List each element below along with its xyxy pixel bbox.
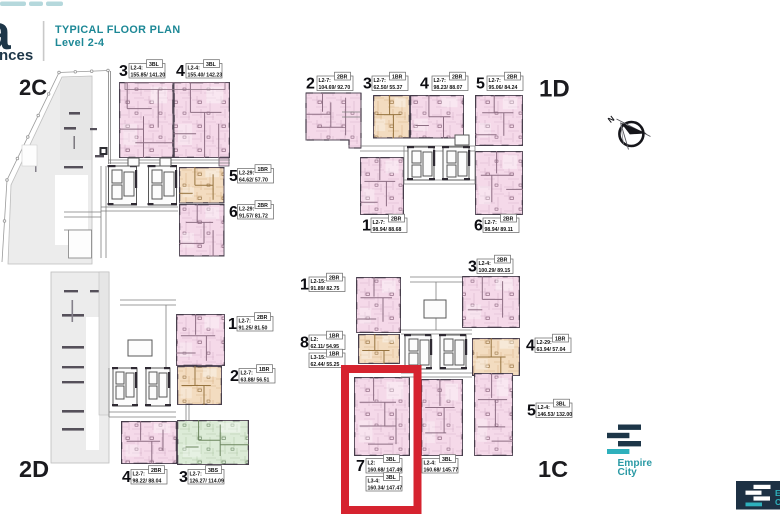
svg-text:100.29/ 89.15: 100.29/ 89.15 — [479, 268, 511, 274]
svg-text:1D: 1D — [539, 76, 570, 103]
svg-text:98.94/ 88.68: 98.94/ 88.68 — [373, 227, 402, 233]
svg-text:6: 6 — [229, 204, 238, 221]
svg-text:3BS: 3BS — [208, 468, 219, 474]
svg-text:L2-7:: L2-7: — [241, 371, 254, 377]
svg-text:L2-7:: L2-7: — [489, 78, 502, 84]
svg-text:L2-7:: L2-7: — [485, 220, 498, 226]
svg-text:1: 1 — [300, 277, 309, 294]
svg-text:7: 7 — [356, 458, 365, 475]
svg-text:2BR: 2BR — [257, 315, 268, 321]
svg-text:L2-7:: L2-7: — [319, 78, 332, 84]
svg-text:1BR: 1BR — [555, 336, 566, 342]
svg-text:3: 3 — [363, 76, 372, 93]
svg-text:2BR: 2BR — [507, 74, 518, 80]
svg-text:155.40/ 142.23: 155.40/ 142.23 — [188, 72, 223, 78]
svg-text:L2-4:: L2-4: — [479, 261, 492, 267]
svg-text:64.62/ 57.70: 64.62/ 57.70 — [239, 177, 268, 183]
svg-text:L2-29:: L2-29: — [537, 340, 553, 346]
svg-text:1: 1 — [228, 316, 237, 333]
svg-text:62.50/ 55.37: 62.50/ 55.37 — [374, 85, 403, 91]
svg-text:L2-4:: L2-4: — [131, 66, 144, 72]
svg-text:L2-7:: L2-7: — [373, 220, 386, 226]
svg-text:98.22/ 88.04: 98.22/ 88.04 — [133, 478, 162, 484]
svg-text:98.23/ 88.07: 98.23/ 88.07 — [434, 85, 463, 91]
svg-text:2BR: 2BR — [497, 257, 508, 263]
svg-text:C: C — [775, 497, 780, 507]
svg-text:L2:: L2: — [311, 337, 319, 343]
svg-text:1BR: 1BR — [258, 167, 269, 173]
svg-text:5: 5 — [229, 168, 238, 185]
svg-text:2: 2 — [306, 76, 315, 93]
svg-text:City: City — [618, 467, 638, 478]
svg-text:L3-4:: L3-4: — [368, 479, 381, 485]
svg-text:3BL: 3BL — [149, 62, 160, 68]
svg-text:L2-7:: L2-7: — [239, 319, 252, 325]
svg-text:160.34/ 147.47: 160.34/ 147.47 — [368, 485, 403, 491]
svg-text:1C: 1C — [538, 456, 568, 482]
svg-text:3BL: 3BL — [386, 475, 397, 481]
svg-text:nces: nces — [0, 47, 33, 64]
svg-text:3BL: 3BL — [206, 62, 217, 68]
svg-text:L2-15:: L2-15: — [311, 279, 327, 285]
svg-text:2BR: 2BR — [337, 74, 348, 80]
svg-text:2BR: 2BR — [503, 216, 514, 222]
svg-text:63.88/ 56.51: 63.88/ 56.51 — [241, 377, 270, 383]
svg-text:1BR: 1BR — [329, 351, 340, 357]
svg-text:2BR: 2BR — [391, 216, 402, 222]
svg-text:4: 4 — [122, 469, 131, 486]
svg-text:1BR: 1BR — [329, 333, 340, 339]
svg-text:5: 5 — [527, 403, 536, 420]
svg-text:L2-4:: L2-4: — [188, 66, 201, 72]
svg-text:L2-4:: L2-4: — [424, 461, 437, 467]
svg-text:L2-7:: L2-7: — [133, 472, 146, 478]
svg-text:91.25/ 81.50: 91.25/ 81.50 — [239, 325, 268, 331]
svg-text:8: 8 — [300, 335, 309, 352]
svg-text:L2-7:: L2-7: — [190, 472, 203, 478]
svg-text:62.44/ 55.25: 62.44/ 55.25 — [311, 362, 340, 368]
svg-text:91.57/ 81.72: 91.57/ 81.72 — [239, 213, 268, 219]
svg-text:L2-7:: L2-7: — [434, 78, 447, 84]
svg-text:1BR: 1BR — [259, 367, 270, 373]
svg-text:1BR: 1BR — [392, 74, 403, 80]
svg-text:6: 6 — [474, 218, 483, 235]
svg-text:146.53/ 132.00: 146.53/ 132.00 — [538, 412, 573, 418]
svg-text:2BR: 2BR — [151, 468, 162, 474]
svg-text:160.68/ 145.77: 160.68/ 145.77 — [424, 467, 459, 473]
svg-text:L2-4:: L2-4: — [538, 405, 551, 411]
svg-text:3BL: 3BL — [556, 401, 567, 407]
svg-text:Level 2-4: Level 2-4 — [55, 37, 104, 49]
svg-text:95.06/ 84.24: 95.06/ 84.24 — [489, 85, 518, 91]
svg-text:2BR: 2BR — [258, 203, 269, 209]
svg-text:L2-29:: L2-29: — [239, 171, 255, 177]
svg-text:3: 3 — [119, 63, 128, 80]
svg-text:3: 3 — [468, 259, 477, 276]
svg-text:4: 4 — [526, 338, 535, 355]
svg-text:126.27/ 114.09: 126.27/ 114.09 — [190, 478, 224, 484]
svg-text:3BL: 3BL — [442, 457, 453, 463]
svg-text:L2-29:: L2-29: — [239, 207, 255, 213]
svg-text:63.94/ 57.04: 63.94/ 57.04 — [537, 347, 566, 353]
svg-text:91.89/ 82.75: 91.89/ 82.75 — [311, 286, 340, 292]
svg-text:4: 4 — [420, 76, 429, 93]
svg-text:L2:: L2: — [368, 461, 376, 467]
svg-text:5: 5 — [476, 76, 485, 93]
svg-text:2: 2 — [230, 368, 239, 385]
svg-text:L2-7:: L2-7: — [374, 78, 387, 84]
svg-text:4: 4 — [176, 63, 185, 80]
svg-text:3: 3 — [179, 469, 188, 486]
svg-text:2BR: 2BR — [452, 74, 463, 80]
svg-text:155.85/ 141.20: 155.85/ 141.20 — [131, 72, 166, 78]
svg-text:2BR: 2BR — [329, 275, 340, 281]
svg-text:98.94/ 89.11: 98.94/ 89.11 — [485, 227, 514, 233]
svg-text:1: 1 — [362, 218, 371, 235]
svg-text:3BL: 3BL — [386, 457, 397, 463]
svg-text:104.69/ 92.70: 104.69/ 92.70 — [319, 85, 351, 91]
svg-text:L3-15:: L3-15: — [311, 355, 327, 361]
svg-text:TYPICAL FLOOR PLAN: TYPICAL FLOOR PLAN — [55, 24, 180, 36]
svg-text:2D: 2D — [19, 456, 49, 482]
svg-text:2C: 2C — [19, 75, 47, 100]
